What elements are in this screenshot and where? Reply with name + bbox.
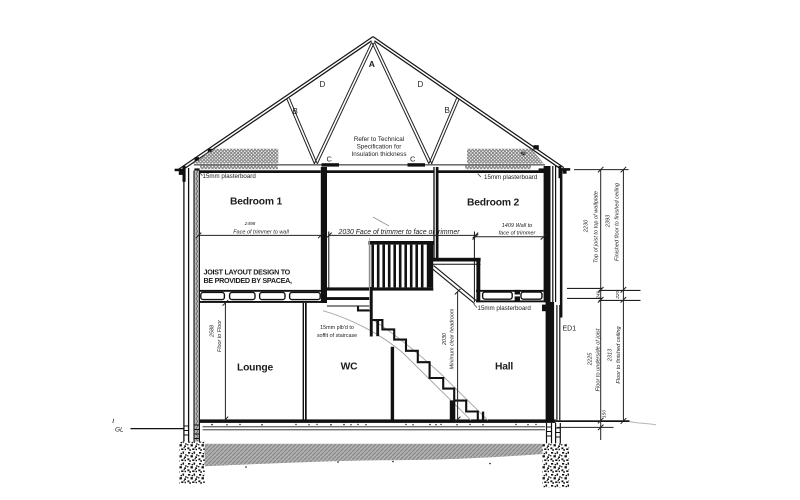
svg-text:C: C bbox=[410, 155, 416, 164]
svg-text:BE PROVIDED BY SPACEA,: BE PROVIDED BY SPACEA, bbox=[204, 276, 292, 285]
svg-text:B: B bbox=[445, 106, 450, 115]
svg-text:2393: 2393 bbox=[606, 214, 612, 228]
svg-text:220: 220 bbox=[615, 290, 621, 299]
svg-text:Lounge: Lounge bbox=[237, 363, 273, 374]
svg-text:2230: 2230 bbox=[584, 219, 590, 233]
svg-text:Floor to finished ceiling: Floor to finished ceiling bbox=[616, 326, 622, 384]
svg-text:Refer to Technical: Refer to Technical bbox=[354, 136, 404, 143]
svg-text:D: D bbox=[320, 80, 326, 89]
svg-text:Specification for: Specification for bbox=[357, 144, 402, 151]
svg-text:1409 Wall to: 1409 Wall to bbox=[502, 223, 532, 229]
svg-text:face of trimmer: face of trimmer bbox=[499, 231, 537, 237]
svg-text:Face of trimmer to wall: Face of trimmer to wall bbox=[233, 230, 289, 236]
svg-text:2030: 2030 bbox=[442, 333, 448, 346]
svg-text:Finished floor to finished cei: Finished floor to finished ceiling bbox=[615, 182, 621, 261]
svg-text:soffit of staircase: soffit of staircase bbox=[317, 333, 357, 339]
svg-text:Hall: Hall bbox=[495, 362, 513, 373]
svg-text:15mm plb'd to: 15mm plb'd to bbox=[320, 325, 354, 331]
svg-text:15mm plasterboard: 15mm plasterboard bbox=[203, 173, 257, 180]
svg-text:2498: 2498 bbox=[244, 221, 256, 227]
svg-text:C: C bbox=[327, 155, 333, 164]
svg-text:Floor to underside of joist: Floor to underside of joist bbox=[596, 328, 602, 391]
svg-text:B: B bbox=[293, 107, 298, 116]
svg-text:ED1: ED1 bbox=[563, 326, 577, 333]
svg-text:WC: WC bbox=[341, 362, 359, 373]
svg-text:241: 241 bbox=[596, 290, 602, 299]
svg-text:Bedroom 1: Bedroom 1 bbox=[230, 197, 282, 208]
svg-text:Minimum clear headroom: Minimum clear headroom bbox=[450, 308, 456, 369]
svg-text:Floor to Floor: Floor to Floor bbox=[217, 320, 223, 352]
svg-text:2313: 2313 bbox=[608, 348, 614, 362]
svg-text:Bedroom 2: Bedroom 2 bbox=[467, 198, 519, 209]
svg-text:150: 150 bbox=[602, 410, 608, 418]
svg-text:D: D bbox=[418, 80, 424, 89]
svg-text:2588: 2588 bbox=[210, 325, 216, 338]
svg-text:Insulation thickness: Insulation thickness bbox=[352, 151, 407, 158]
svg-text:2225: 2225 bbox=[588, 352, 594, 366]
svg-text:A: A bbox=[369, 59, 375, 69]
svg-text:Top of joist to top of wallpla: Top of joist to top of wallplate bbox=[594, 191, 600, 263]
svg-text:GL: GL bbox=[115, 427, 124, 434]
svg-text:15mm plasterboard: 15mm plasterboard bbox=[484, 174, 538, 181]
svg-text:15mm plasterboard: 15mm plasterboard bbox=[478, 305, 532, 312]
